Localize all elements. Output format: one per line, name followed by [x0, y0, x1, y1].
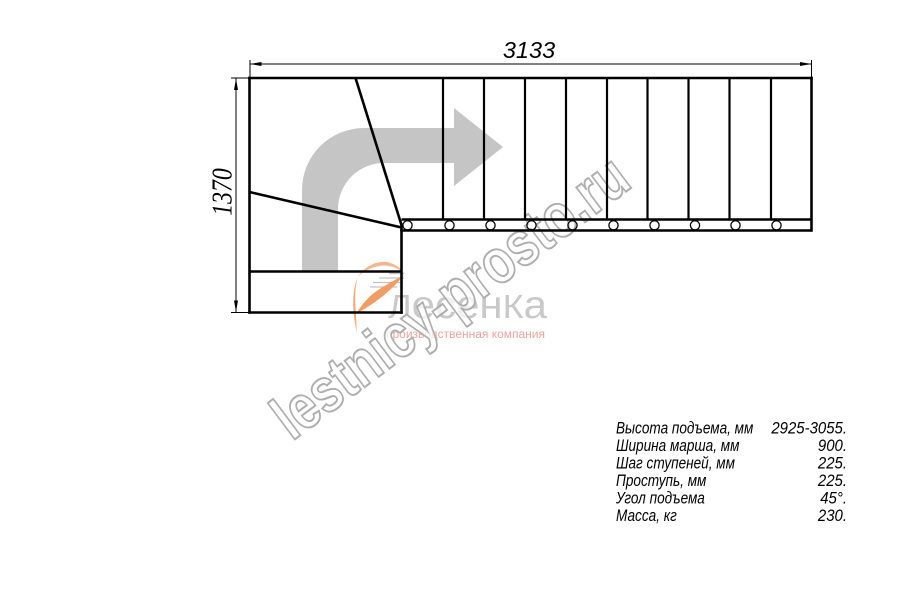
svg-text:Масса, кг: Масса, кг	[616, 507, 677, 526]
svg-text:225.: 225.	[817, 455, 847, 473]
svg-text:2925-3055.: 2925-3055.	[770, 420, 847, 438]
svg-text:Высота подъема, мм: Высота подъема, мм	[616, 419, 754, 438]
svg-text:Угол подъема: Угол подъема	[615, 489, 705, 508]
svg-text:230.: 230.	[817, 507, 847, 525]
svg-text:Ширина марша, мм: Ширина марша, мм	[616, 437, 740, 456]
svg-text:Шаг ступеней, мм: Шаг ступеней, мм	[616, 454, 735, 473]
svg-text:225.: 225.	[817, 472, 847, 490]
svg-text:Проступь, мм: Проступь, мм	[616, 472, 707, 491]
svg-text:900.: 900.	[818, 437, 847, 455]
svg-text:45°.: 45°.	[820, 490, 847, 508]
svg-text:3133: 3133	[503, 37, 555, 63]
svg-text:1370: 1370	[205, 168, 238, 216]
